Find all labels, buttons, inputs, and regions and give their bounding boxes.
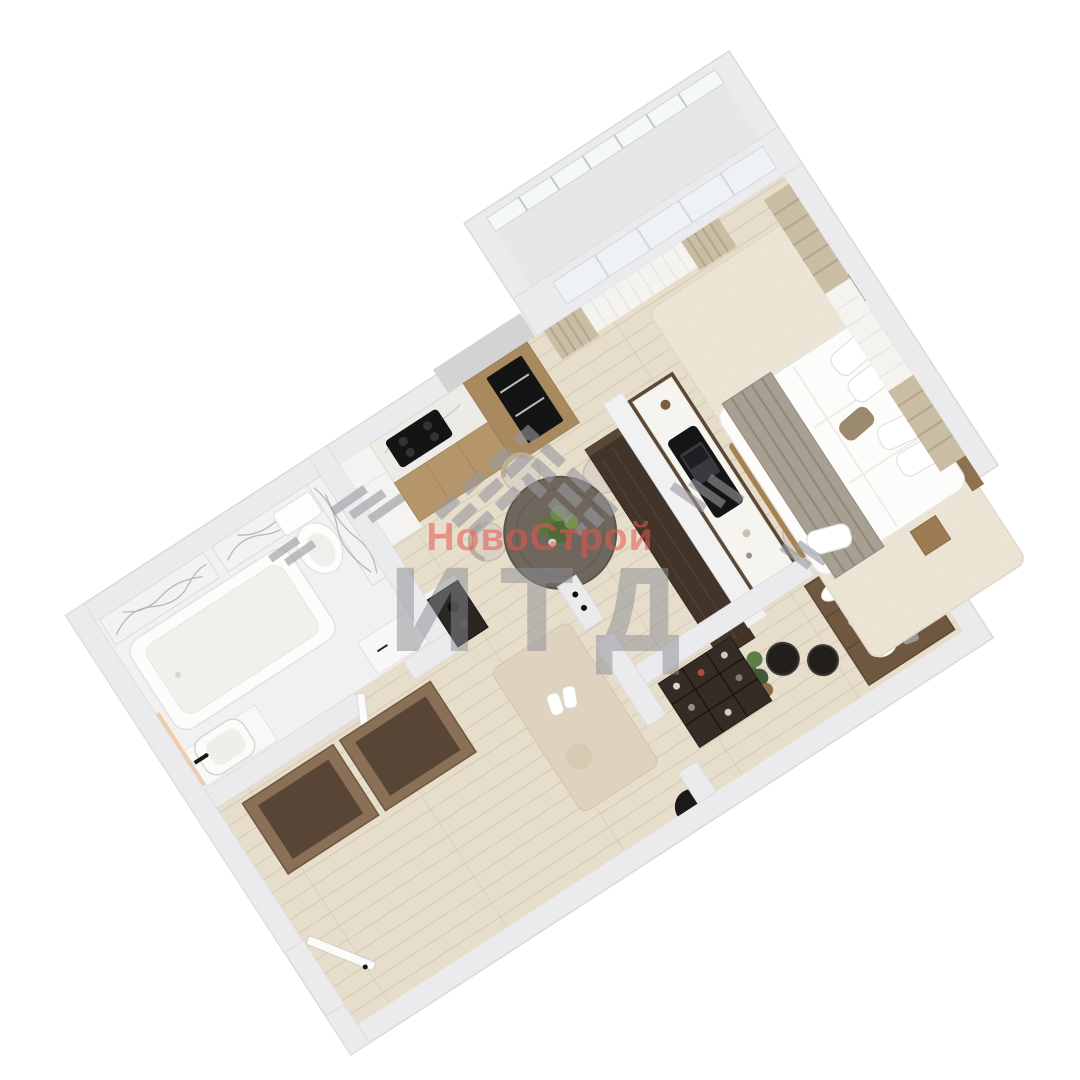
watermark-abbr-text: ИТД bbox=[390, 544, 706, 676]
floorplan-svg: НовоСтрой ИТД bbox=[0, 0, 1080, 1080]
floorplan-render: НовоСтрой ИТД bbox=[0, 0, 1080, 1080]
